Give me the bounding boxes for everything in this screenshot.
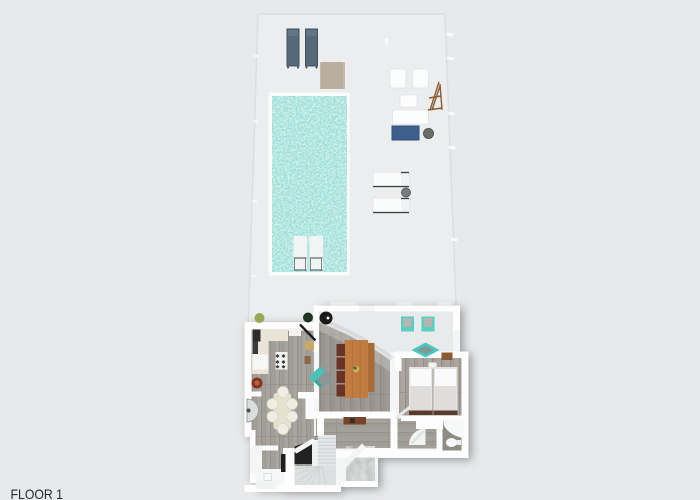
svg-text:FLOOR 1: FLOOR 1 (11, 486, 64, 500)
